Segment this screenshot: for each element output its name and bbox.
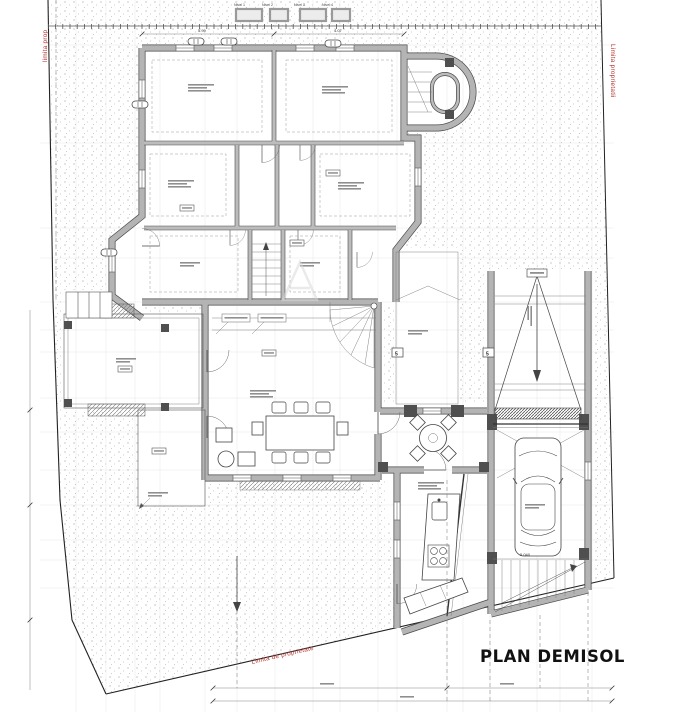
window-icon	[394, 540, 400, 558]
floor-plan-canvas: Nivel 1 Nivel 2 Nivel 3 Nivel 4	[0, 0, 680, 720]
vent-capsule-icon	[101, 249, 117, 256]
plan-title: PLAN DEMISOL	[480, 647, 625, 666]
dining-table	[266, 416, 334, 450]
floor-plan-page: Nivel 1 Nivel 2 Nivel 3 Nivel 4	[0, 0, 680, 720]
vent-capsule-icon	[325, 40, 341, 47]
chair	[337, 422, 348, 435]
window-icon	[415, 168, 421, 186]
window-icon	[139, 80, 145, 98]
chair	[294, 452, 308, 463]
deck-edge	[240, 481, 360, 490]
level-label-2: Nivel 2	[262, 3, 273, 7]
elevation-box	[152, 448, 166, 454]
car-plan-symbol	[513, 438, 563, 556]
pillar	[451, 405, 464, 417]
elevation-box	[262, 350, 276, 356]
window-marker-left: 5	[395, 352, 398, 358]
window-icon	[585, 462, 591, 480]
pillar	[487, 552, 497, 564]
chair	[316, 402, 330, 413]
drain-grille	[495, 408, 581, 419]
boundary-label-right: Limita proprietatii	[609, 44, 616, 98]
window-icon	[283, 475, 301, 481]
dim-room-b: 4.07	[334, 28, 343, 33]
elevation-box	[180, 205, 194, 211]
pillar	[479, 462, 489, 472]
armchair	[218, 451, 234, 467]
window-icon	[109, 254, 115, 272]
side-table	[216, 428, 232, 442]
garage-dim: 5.040	[520, 552, 531, 557]
window-icon	[139, 170, 145, 188]
pillar	[378, 462, 388, 472]
boundary-label-left: limita prop	[42, 29, 49, 62]
vent-capsule-icon	[221, 38, 237, 45]
window-icon	[296, 45, 314, 51]
window-icon	[333, 475, 351, 481]
armchair	[238, 452, 255, 466]
vent-capsule-icon	[188, 38, 204, 45]
round-table	[420, 425, 447, 452]
elevation-box	[290, 240, 304, 246]
elevation-box	[326, 170, 340, 176]
chair	[272, 452, 286, 463]
vent-capsule-icon	[132, 101, 148, 108]
patio-steps	[88, 404, 145, 416]
chair	[272, 402, 286, 413]
level-label-3: Nivel 3	[294, 3, 305, 7]
entry-steps	[66, 292, 112, 318]
window-icon	[394, 502, 400, 520]
pillar	[404, 405, 417, 417]
level-label-1: Nivel 1	[234, 3, 245, 7]
chair	[252, 422, 263, 435]
pillar	[579, 548, 589, 560]
window-icon	[423, 408, 441, 414]
elevation-box	[118, 366, 132, 372]
window-icon	[214, 45, 232, 51]
window-icon	[176, 45, 194, 51]
window-icon	[233, 475, 251, 481]
dim-room-a: 5.99	[198, 28, 207, 33]
chair	[294, 402, 308, 413]
level-label-4: Nivel 4	[322, 3, 333, 7]
window-marker-right: 5	[486, 352, 489, 358]
car-body	[515, 438, 561, 556]
chair	[316, 452, 330, 463]
